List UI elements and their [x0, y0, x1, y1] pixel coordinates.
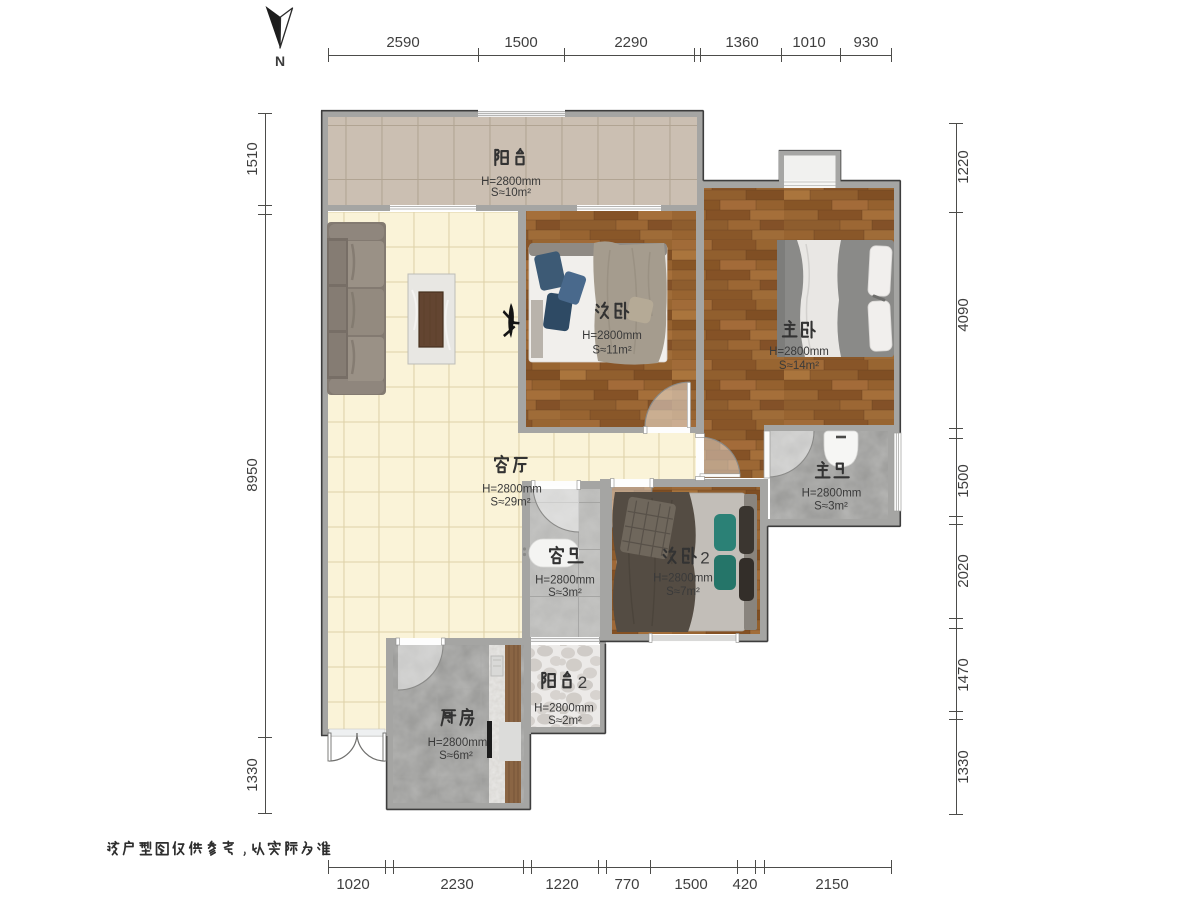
svg-text:930: 930 [853, 34, 878, 51]
svg-text:S≈7m²: S≈7m² [666, 586, 700, 598]
svg-text:N: N [275, 53, 285, 69]
svg-text:S≈3m²: S≈3m² [548, 587, 582, 599]
svg-text:2590: 2590 [386, 34, 419, 51]
svg-text:1020: 1020 [336, 876, 369, 893]
svg-text:2150: 2150 [815, 876, 848, 893]
svg-text:2230: 2230 [440, 876, 473, 893]
svg-text:H=2800mm: H=2800mm [482, 484, 542, 496]
svg-text:2: 2 [700, 549, 709, 568]
svg-text:H=2800mm: H=2800mm [535, 575, 595, 587]
svg-text:1330: 1330 [955, 750, 972, 783]
svg-text:S≈2m²: S≈2m² [548, 715, 582, 727]
svg-text:8950: 8950 [244, 458, 261, 491]
svg-text:H=2800mm: H=2800mm [769, 346, 829, 358]
svg-text:2: 2 [578, 673, 587, 692]
svg-text:S≈3m²: S≈3m² [814, 501, 848, 513]
svg-text:1330: 1330 [244, 758, 261, 791]
svg-text:H=2800mm: H=2800mm [802, 488, 862, 500]
svg-text:1220: 1220 [545, 876, 578, 893]
svg-text:S≈14m²: S≈14m² [779, 360, 819, 372]
svg-text:2020: 2020 [955, 554, 972, 587]
svg-text:S≈6m²: S≈6m² [439, 750, 473, 762]
svg-text:1500: 1500 [504, 34, 537, 51]
svg-text:1500: 1500 [955, 464, 972, 497]
svg-text:4090: 4090 [955, 298, 972, 331]
svg-text:2290: 2290 [614, 34, 647, 51]
svg-text:1470: 1470 [955, 658, 972, 691]
svg-text:1500: 1500 [674, 876, 707, 893]
svg-text:1360: 1360 [725, 34, 758, 51]
svg-text:S≈10m²: S≈10m² [491, 187, 531, 199]
svg-text:1510: 1510 [244, 142, 261, 175]
svg-text:420: 420 [732, 876, 757, 893]
svg-text:S≈29m²: S≈29m² [490, 497, 530, 509]
svg-text:1010: 1010 [792, 34, 825, 51]
svg-text:770: 770 [614, 876, 639, 893]
svg-text:H=2800mm: H=2800mm [582, 330, 642, 342]
svg-text:H=2800mm: H=2800mm [428, 737, 488, 749]
svg-text:S≈11m²: S≈11m² [592, 345, 631, 357]
svg-text:1220: 1220 [955, 150, 972, 183]
svg-text:H=2800mm: H=2800mm [534, 703, 594, 715]
svg-text:H=2800mm: H=2800mm [653, 573, 713, 585]
